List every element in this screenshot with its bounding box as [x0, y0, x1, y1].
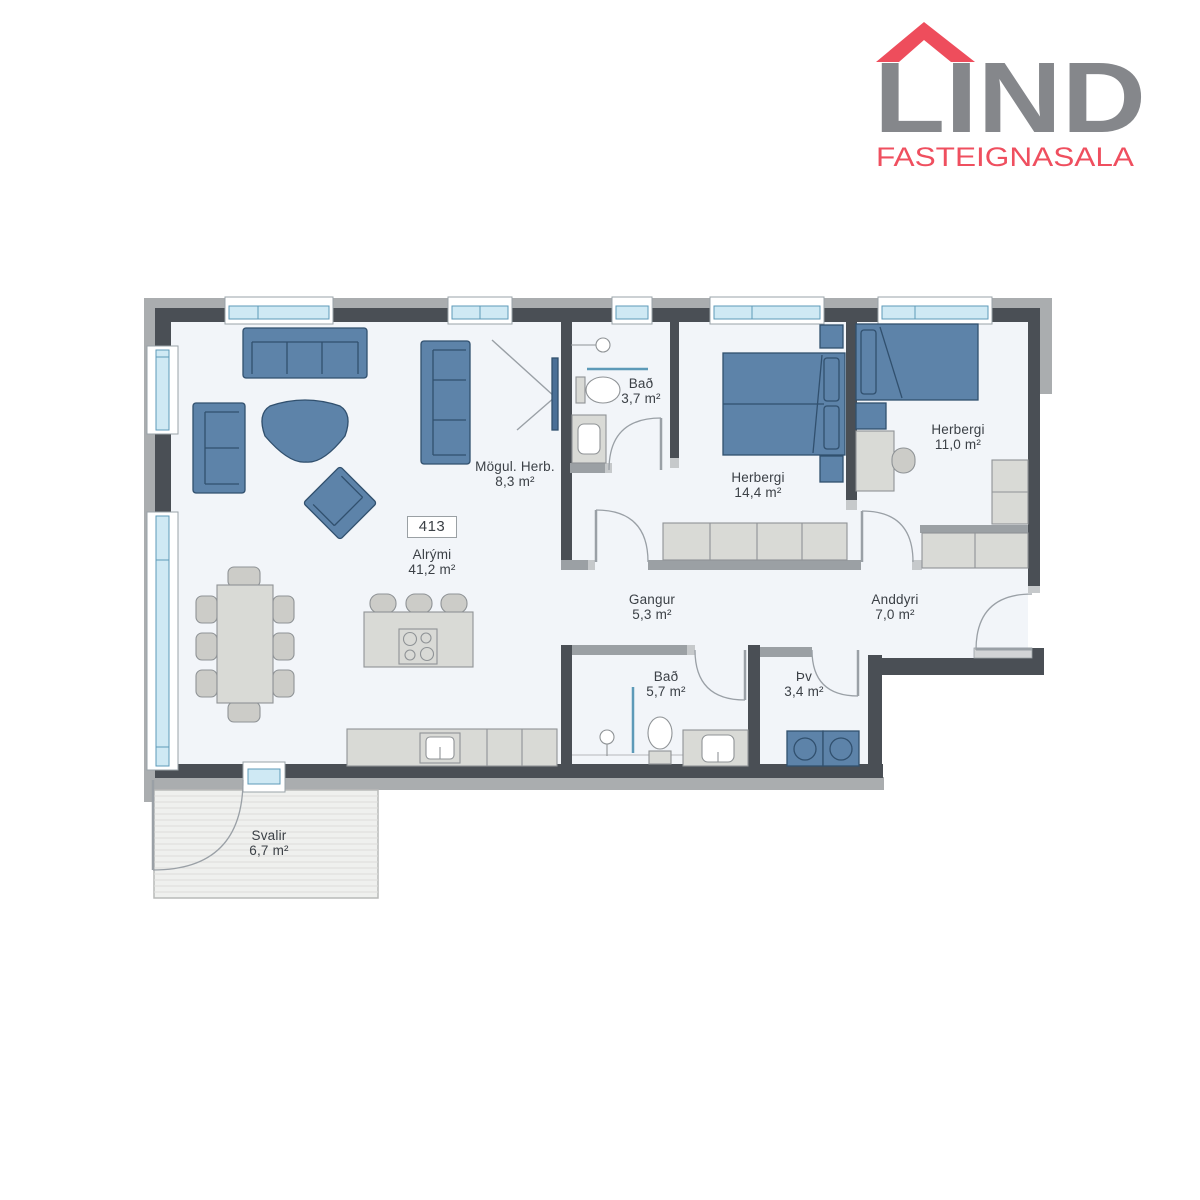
room-area: 5,7 m² [646, 684, 685, 699]
room-area: 41,2 m² [408, 562, 455, 577]
window-bedroom2-top [878, 297, 992, 324]
shower-head [596, 338, 610, 352]
tv-screen [552, 358, 558, 430]
window-living-top [225, 297, 333, 324]
room-name: Þv [784, 669, 823, 684]
logo-subtitle: FASTEIGNASALA [876, 142, 1134, 172]
room-label-svalir: Svalir 6,7 m² [249, 828, 288, 858]
dining-table [217, 585, 273, 703]
room-label-alrymi: Alrými 41,2 m² [408, 547, 455, 577]
room-label-anddyri: Anddyri 7,0 m² [871, 592, 918, 622]
room-area: 14,4 m² [731, 485, 784, 500]
toilet-tank [576, 377, 585, 403]
window-living-left-upper [147, 346, 178, 434]
logo: LIND FASTEIGNASALA [874, 22, 1146, 172]
nightstand [820, 325, 843, 348]
nightstand [856, 403, 886, 429]
dryer [823, 731, 859, 766]
room-label-thvottahus: Þv 3,4 m² [784, 669, 823, 699]
room-label-herbergi-14: Herbergi 14,4 m² [731, 470, 784, 500]
washer [787, 731, 823, 766]
room-area: 11,0 m² [931, 437, 984, 452]
room-label-gangur: Gangur 5,3 m² [629, 592, 675, 622]
room-name: Bað [646, 669, 685, 684]
shower-head [600, 730, 614, 744]
window-mogul-top [448, 297, 512, 324]
room-area: 7,0 m² [871, 607, 918, 622]
toilet-tank [649, 751, 671, 764]
room-label-bad-large: Bað 5,7 m² [646, 669, 685, 699]
kitchen-island [364, 612, 473, 667]
room-name: Mögul. Herb. [475, 459, 555, 474]
room-name: Herbergi [731, 470, 784, 485]
room-name: Alrými [408, 547, 455, 562]
window-living-left-lower [147, 512, 178, 770]
room-name: Anddyri [871, 592, 918, 607]
sofa-possible-room [421, 341, 470, 464]
floorplan-page: LIND FASTEIGNASALA Alrými 41,2 m² Mögul.… [0, 0, 1200, 1200]
room-name: Bað [621, 376, 660, 391]
bedroom1-wardrobe [663, 523, 847, 560]
room-name: Svalir [249, 828, 288, 843]
nightstand [820, 456, 843, 482]
room-area: 3,7 m² [621, 391, 660, 406]
single-bed [856, 324, 978, 400]
room-label-bad-small: Bað 3,7 m² [621, 376, 660, 406]
floorplan-drawing: LIND FASTEIGNASALA [0, 0, 1200, 1200]
room-name: Herbergi [931, 422, 984, 437]
window-bath-top [612, 297, 652, 324]
room-area: 3,4 m² [784, 684, 823, 699]
room-name: Gangur [629, 592, 675, 607]
bar-stools [370, 594, 467, 613]
logo-wordmark: LIND [874, 42, 1146, 154]
sofa-two-seat [193, 403, 245, 493]
room-area: 8,3 m² [475, 474, 555, 489]
kitchen-counter [347, 729, 557, 766]
laundry-machines [787, 731, 859, 766]
wardrobe-anddyri [922, 533, 1028, 568]
toilet-bowl [648, 717, 672, 749]
room-area: 6,7 m² [249, 843, 288, 858]
unit-number-badge: 413 [407, 516, 457, 538]
wardrobe-bedroom2 [992, 460, 1028, 524]
desk-chair [892, 448, 915, 473]
vanity-sink [578, 424, 600, 454]
sofa-three-seat [243, 328, 367, 378]
toilet-bowl [586, 377, 620, 403]
room-label-mogul-herb: Mögul. Herb. 8,3 m² [475, 459, 555, 489]
window-bedroom1-top [710, 297, 824, 324]
room-area: 5,3 m² [629, 607, 675, 622]
desk [856, 431, 894, 491]
room-label-herbergi-11: Herbergi 11,0 m² [931, 422, 984, 452]
